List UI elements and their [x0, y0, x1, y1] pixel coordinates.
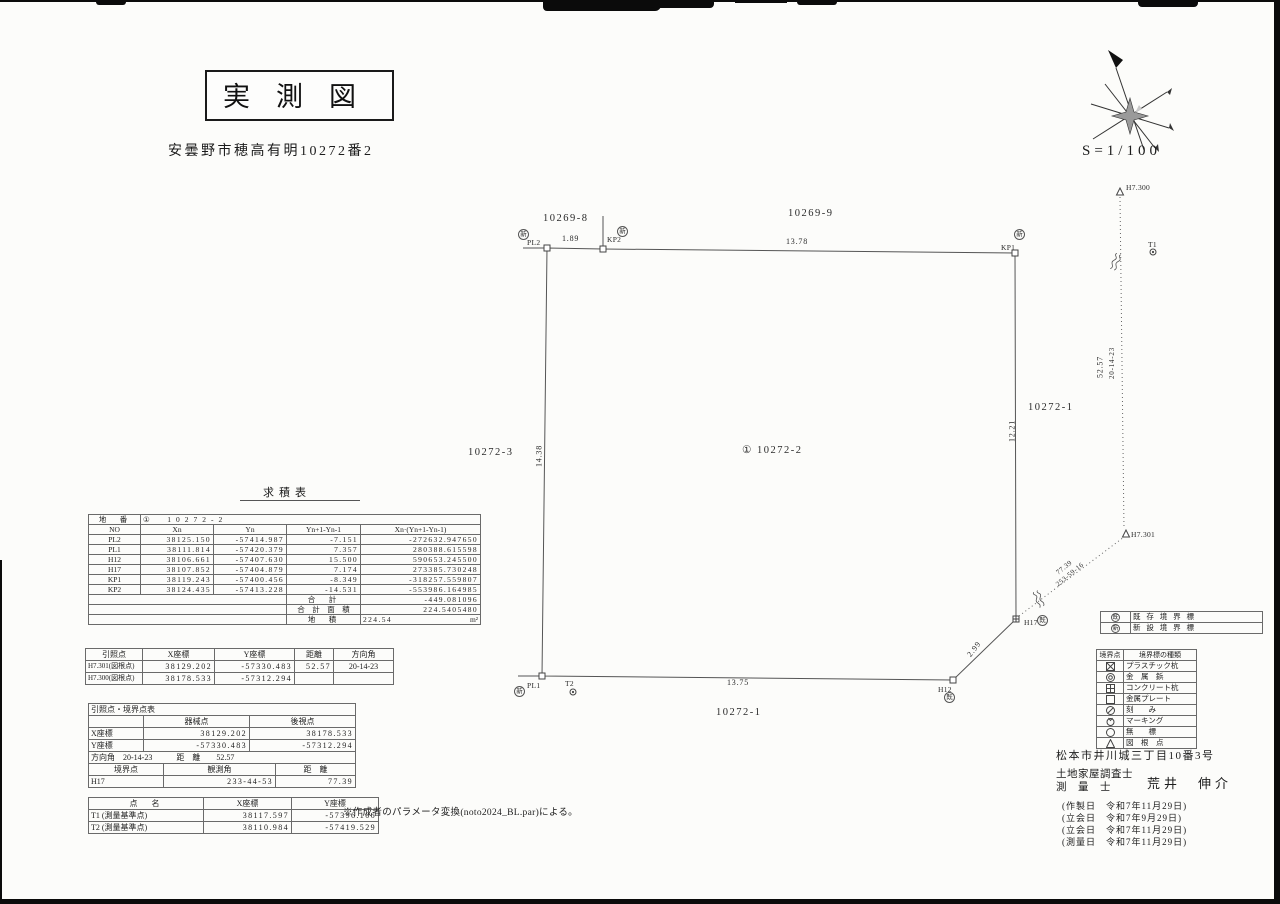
- concrete-stake-icon: [1106, 684, 1115, 693]
- boundary-point-marker-pl1: [539, 673, 545, 679]
- legend-existing-new: 既 既 存 境 界 標 新 新 設 境 界 標: [1100, 611, 1263, 634]
- col-header: Y座標: [215, 649, 295, 661]
- cell: 7.357: [287, 545, 361, 555]
- legend-label: 金 属 鋲: [1124, 672, 1197, 683]
- cell: -57312.294: [215, 673, 295, 685]
- cell: -14.531: [287, 585, 361, 595]
- cell: 38124.435: [141, 585, 214, 595]
- table-row: KP1 38119.243 -57400.456 -8.349 -318257.…: [89, 575, 481, 585]
- table-header-row: NO Xn Yn Yn+1-Yn-1 Xn·(Yn+1-Yn-1): [89, 525, 481, 535]
- cell: [89, 595, 287, 605]
- reference-point-table: 引照点 X座標 Y座標 距離 方向角 H7.301(図根点) 38129.202…: [85, 648, 394, 685]
- col-header: 境界標の種類: [1124, 650, 1197, 661]
- parcel-label: 10272-1: [1028, 402, 1074, 413]
- col-header: X座標: [143, 649, 215, 661]
- cell: PL2: [89, 535, 141, 545]
- reference-boundary-table: 引照点・境界点表 器械点 後視点 X座標 38129.202 38178.533…: [88, 703, 356, 788]
- cell: 20-14-23: [334, 661, 394, 673]
- cell: [334, 673, 394, 685]
- point-label-kp1: KP1: [1001, 243, 1015, 252]
- table-row: T1 (測量基準点) 38117.597 -57396.106: [89, 810, 379, 822]
- cell: 38111.814: [141, 545, 214, 555]
- point-label-h7301: H7.301: [1131, 530, 1155, 539]
- col-header: Yn: [214, 525, 287, 535]
- legend-row: 金 属 鋲: [1097, 672, 1197, 683]
- existing-marker-icon: 既: [1111, 613, 1120, 622]
- legend-row: プラスチック杭: [1097, 661, 1197, 672]
- surveyor-name: 荒井 伸介: [1147, 773, 1232, 794]
- cell: H17: [89, 776, 164, 788]
- cell: -57419.529: [292, 822, 379, 834]
- cell: -8.349: [287, 575, 361, 585]
- legend-symbol-cell: [1097, 727, 1124, 738]
- date-line: (立会日 令和7年11月29日): [1062, 824, 1278, 836]
- legend-symbol-cell: [1097, 705, 1124, 716]
- parcel-label: 10269-9: [788, 208, 834, 219]
- chiban-label: 地 番: [89, 515, 141, 525]
- col-header: 境界点: [89, 764, 164, 776]
- col-header: 境界点: [1097, 650, 1124, 661]
- marker-status-badge: 既: [944, 692, 955, 703]
- marker-status-badge: 新: [518, 229, 529, 240]
- sum-area-value: 224.5405480: [361, 605, 481, 615]
- boundary-point-marker-h12: [950, 677, 956, 683]
- col-header: 方向角: [334, 649, 394, 661]
- cell: -57404.879: [214, 565, 287, 575]
- survey-base-point-marker-t1: [1150, 249, 1156, 255]
- table-row: KP2 38124.435 -57413.228 -14.531 -553986…: [89, 585, 481, 595]
- col-header: NO: [89, 525, 141, 535]
- cell: [89, 716, 144, 728]
- cell: 38178.533: [143, 673, 215, 685]
- cell: -553986.164985: [361, 585, 481, 595]
- cell: -7.151: [287, 535, 361, 545]
- legend-label: 金属プレート: [1124, 694, 1197, 705]
- cell: 590653.245500: [361, 555, 481, 565]
- table-row: H7.301(図根点) 38129.202 -57330.483 52.57 2…: [86, 661, 394, 673]
- sum-label: 合 計: [287, 595, 361, 605]
- cell: 77.39: [276, 776, 356, 788]
- legend-header-row: 境界点 境界標の種類: [1097, 650, 1197, 661]
- cell: [295, 673, 334, 685]
- line-break-mark: [1110, 253, 1121, 271]
- legend-symbol-cell: [1097, 661, 1124, 672]
- marker-status-badge: 既: [1037, 615, 1048, 626]
- point-label-pl1: PL1: [527, 681, 540, 690]
- table-header-row: 点 名 X座標 Y座標: [89, 798, 379, 810]
- parcel-label-subject: ① 10272-2: [742, 444, 803, 456]
- surveyor-roles: 土地家屋調査士 測 量 士: [1056, 768, 1133, 794]
- cell: 38125.150: [141, 535, 214, 545]
- cell: H17: [89, 565, 141, 575]
- cell: 38117.597: [204, 810, 292, 822]
- surveyor-role-1: 土地家屋調査士: [1056, 768, 1133, 781]
- marker-status-badge: 新: [617, 226, 628, 237]
- cell: 7.174: [287, 565, 361, 575]
- cell: 273385.730248: [361, 565, 481, 575]
- table-row: H12 38106.661 -57407.630 15.500 590653.2…: [89, 555, 481, 565]
- cell: 38129.202: [144, 728, 250, 740]
- cell: -57420.379: [214, 545, 287, 555]
- col-header: 点 名: [89, 798, 204, 810]
- surveyor-block: 松本市井川城三丁目10番3号 土地家屋調査士 測 量 士 荒井 伸介 (作製日 …: [1056, 747, 1278, 848]
- col-header: X座標: [204, 798, 292, 810]
- reference-angle: 20-14-23: [1108, 347, 1116, 379]
- cell: H12: [89, 555, 141, 565]
- table-row: 地 番 ① 10272-2: [89, 515, 481, 525]
- parameter-note: ※作成者のパラメータ変換(noto2024_BL.par)による。: [343, 804, 578, 818]
- cell: -57414.987: [214, 535, 287, 545]
- table-row: PL1 38111.814 -57420.379 7.357 280388.61…: [89, 545, 481, 555]
- row-label: X座標: [89, 728, 144, 740]
- cell: T1 (測量基準点): [89, 810, 204, 822]
- area-value-cell: 224.54 m²: [361, 615, 481, 625]
- legend-row: 刻 み: [1097, 705, 1197, 716]
- boundary-point-marker-pl2: [544, 245, 550, 251]
- point-label-h17: H17: [1024, 618, 1038, 627]
- table-row: 合 計 -449.081096: [89, 595, 481, 605]
- table-row: T2 (測量基準点) 38110.984 -57419.529: [89, 822, 379, 834]
- table-row: 合 計 面 積 224.5405480: [89, 605, 481, 615]
- reference-line-vertical: [1120, 197, 1124, 529]
- base-point-table: 点 名 X座標 Y座標 T1 (測量基準点) 38117.597 -57396.…: [88, 797, 379, 834]
- parcel-label: 10272-3: [468, 447, 514, 458]
- legend-label: 無 標: [1124, 727, 1197, 738]
- parcel-label: 10269-8: [543, 213, 589, 224]
- cell: KP2: [89, 585, 141, 595]
- cell: H7.300(図根点): [86, 673, 143, 685]
- cell: -57400.456: [214, 575, 287, 585]
- table-row: X座標 38129.202 38178.533: [89, 728, 356, 740]
- point-label-t1: T1: [1148, 240, 1157, 249]
- edge-distance: 13.78: [786, 237, 808, 246]
- sum-area-label: 合 計 面 積: [287, 605, 361, 615]
- parcel-boundary: [542, 248, 1016, 680]
- edge-distance: 12.21: [1008, 420, 1017, 442]
- angle-distance-row: 方向角 20-14-23 距 離 52.57: [89, 752, 356, 764]
- table-row: 引照点・境界点表: [89, 704, 356, 716]
- area-value: 224.54: [363, 615, 392, 624]
- cell: 38106.661: [141, 555, 214, 565]
- area-unit: m²: [470, 615, 478, 624]
- cell: T2 (測量基準点): [89, 822, 204, 834]
- col-header: Xn: [141, 525, 214, 535]
- legend-row: 金属プレート: [1097, 694, 1197, 705]
- cell: -57413.228: [214, 585, 287, 595]
- table-header-row: 器械点 後視点: [89, 716, 356, 728]
- table-row: 方向角 20-14-23 距 離 52.57: [89, 752, 356, 764]
- table-header-row: 境界点 観測角 距 離: [89, 764, 356, 776]
- table-row: 地 積 224.54 m²: [89, 615, 481, 625]
- col-header: 後視点: [250, 716, 356, 728]
- surveyor-dates: (作製日 令和7年11月29日) (立会日 令和7年9月29日) (立会日 令和…: [1062, 800, 1278, 848]
- area-label: 地 積: [287, 615, 361, 625]
- legend-symbol-cell: [1097, 672, 1124, 683]
- surveyor-address: 松本市井川城三丁目10番3号: [1056, 747, 1278, 763]
- cell: -57312.294: [250, 740, 356, 752]
- table-row: H7.300(図根点) 38178.533 -57312.294: [86, 673, 394, 685]
- area-table-title: 求積表: [263, 484, 311, 500]
- legend-symbol-cell: 既: [1101, 612, 1131, 623]
- date-line: (測量日 令和7年11月29日): [1062, 836, 1278, 848]
- marker-status-badge: 新: [514, 686, 525, 697]
- col-header: Yn+1-Yn-1: [287, 525, 361, 535]
- cell: 38107.852: [141, 565, 214, 575]
- col-header: 器械点: [144, 716, 250, 728]
- cell: PL1: [89, 545, 141, 555]
- metal-pin-icon: [1106, 673, 1115, 682]
- legend-label: 新 設 境 界 標: [1131, 623, 1263, 634]
- notch-icon: [1106, 706, 1115, 715]
- plastic-stake-icon: [1106, 662, 1115, 671]
- point-label-pl2: PL2: [527, 238, 540, 247]
- point-label-t2: T2: [565, 679, 574, 688]
- sum-value: -449.081096: [361, 595, 481, 605]
- cell: 38110.984: [204, 822, 292, 834]
- row-label: Y座標: [89, 740, 144, 752]
- cell: 38129.202: [143, 661, 215, 673]
- legend-row: コンクリート杭: [1097, 683, 1197, 694]
- chiban-value: ① 10272-2: [141, 515, 481, 525]
- boundary-point-marker-kp2: [600, 246, 606, 252]
- legend-label: マーキング: [1124, 716, 1197, 727]
- reference-distance: 52.57: [1096, 356, 1105, 378]
- table-row: H17 38107.852 -57404.879 7.174 273385.73…: [89, 565, 481, 575]
- cell: 38178.533: [250, 728, 356, 740]
- legend-symbol-cell: [1097, 694, 1124, 705]
- marker-status-badge: 新: [1014, 229, 1025, 240]
- cell: H7.301(図根点): [86, 661, 143, 673]
- surveyor-name-row: 土地家屋調査士 測 量 士 荒井 伸介: [1056, 768, 1278, 794]
- legend-symbol-cell: 新: [1101, 623, 1131, 634]
- edge-distance: 13.75: [727, 678, 749, 687]
- legend-symbol-cell: [1097, 683, 1124, 694]
- cell: -318257.559807: [361, 575, 481, 585]
- cell: -57407.630: [214, 555, 287, 565]
- col-header: Xn·(Yn+1-Yn-1): [361, 525, 481, 535]
- col-header: 距離: [295, 649, 334, 661]
- legend-row: 無 標: [1097, 727, 1197, 738]
- legend-marker-types: 境界点 境界標の種類 プラスチック杭 金 属 鋲 コンクリート杭: [1096, 649, 1197, 749]
- table-row: Y座標 -57330.483 -57312.294: [89, 740, 356, 752]
- new-marker-icon: 新: [1111, 624, 1120, 633]
- cell: 233-44-53: [164, 776, 276, 788]
- legend-label: コンクリート杭: [1124, 683, 1197, 694]
- boundary-point-marker-h17: [1013, 616, 1019, 622]
- cell: 38119.243: [141, 575, 214, 585]
- date-line: (作製日 令和7年11月29日): [1062, 800, 1278, 812]
- col-header: 観測角: [164, 764, 276, 776]
- survey-base-point-marker-t2: [570, 689, 576, 695]
- legend-symbol-cell: [1097, 716, 1124, 727]
- edge-distance: 1.89: [562, 234, 579, 243]
- marking-icon: [1106, 717, 1115, 726]
- legend-label: プラスチック杭: [1124, 661, 1197, 672]
- cell: [89, 615, 287, 625]
- cell: -272632.947650: [361, 535, 481, 545]
- edge-distance: 14.38: [535, 445, 544, 467]
- cell: [89, 605, 287, 615]
- cell: 52.57: [295, 661, 334, 673]
- table-row: H17 233-44-53 77.39: [89, 776, 356, 788]
- title-underline: [240, 500, 360, 501]
- table-row: PL2 38125.150 -57414.987 -7.151 -272632.…: [89, 535, 481, 545]
- parcel-label: 10272-1: [716, 707, 762, 718]
- cell: -57330.483: [215, 661, 295, 673]
- table-title: 引照点・境界点表: [89, 704, 356, 716]
- no-marker-icon: [1106, 728, 1115, 737]
- date-line: (立会日 令和7年9月29日): [1062, 812, 1278, 824]
- cell: 280388.615598: [361, 545, 481, 555]
- legend-row: 既 既 存 境 界 標: [1101, 612, 1263, 623]
- cell: 15.500: [287, 555, 361, 565]
- surveyor-role-2: 測 量 士: [1056, 781, 1133, 794]
- point-label-h7300: H7.300: [1126, 183, 1150, 192]
- col-header: 距 離: [276, 764, 356, 776]
- cell: KP1: [89, 575, 141, 585]
- metal-plate-icon: [1106, 695, 1115, 704]
- control-point-marker-h7301: [1123, 530, 1130, 537]
- cell: -57330.483: [144, 740, 250, 752]
- survey-sheet: 実測図 安曇野市穂高有明10272番2 S=1/100: [0, 0, 1280, 904]
- col-header: 引照点: [86, 649, 143, 661]
- legend-label: 刻 み: [1124, 705, 1197, 716]
- legend-row: 新 新 設 境 界 標: [1101, 623, 1263, 634]
- legend-row: マーキング: [1097, 716, 1197, 727]
- legend-label: 既 存 境 界 標: [1131, 612, 1263, 623]
- table-header-row: 引照点 X座標 Y座標 距離 方向角: [86, 649, 394, 661]
- control-point-marker-h7300: [1117, 188, 1124, 195]
- area-calculation-table: 地 番 ① 10272-2 NO Xn Yn Yn+1-Yn-1 Xn·(Yn+…: [88, 514, 481, 625]
